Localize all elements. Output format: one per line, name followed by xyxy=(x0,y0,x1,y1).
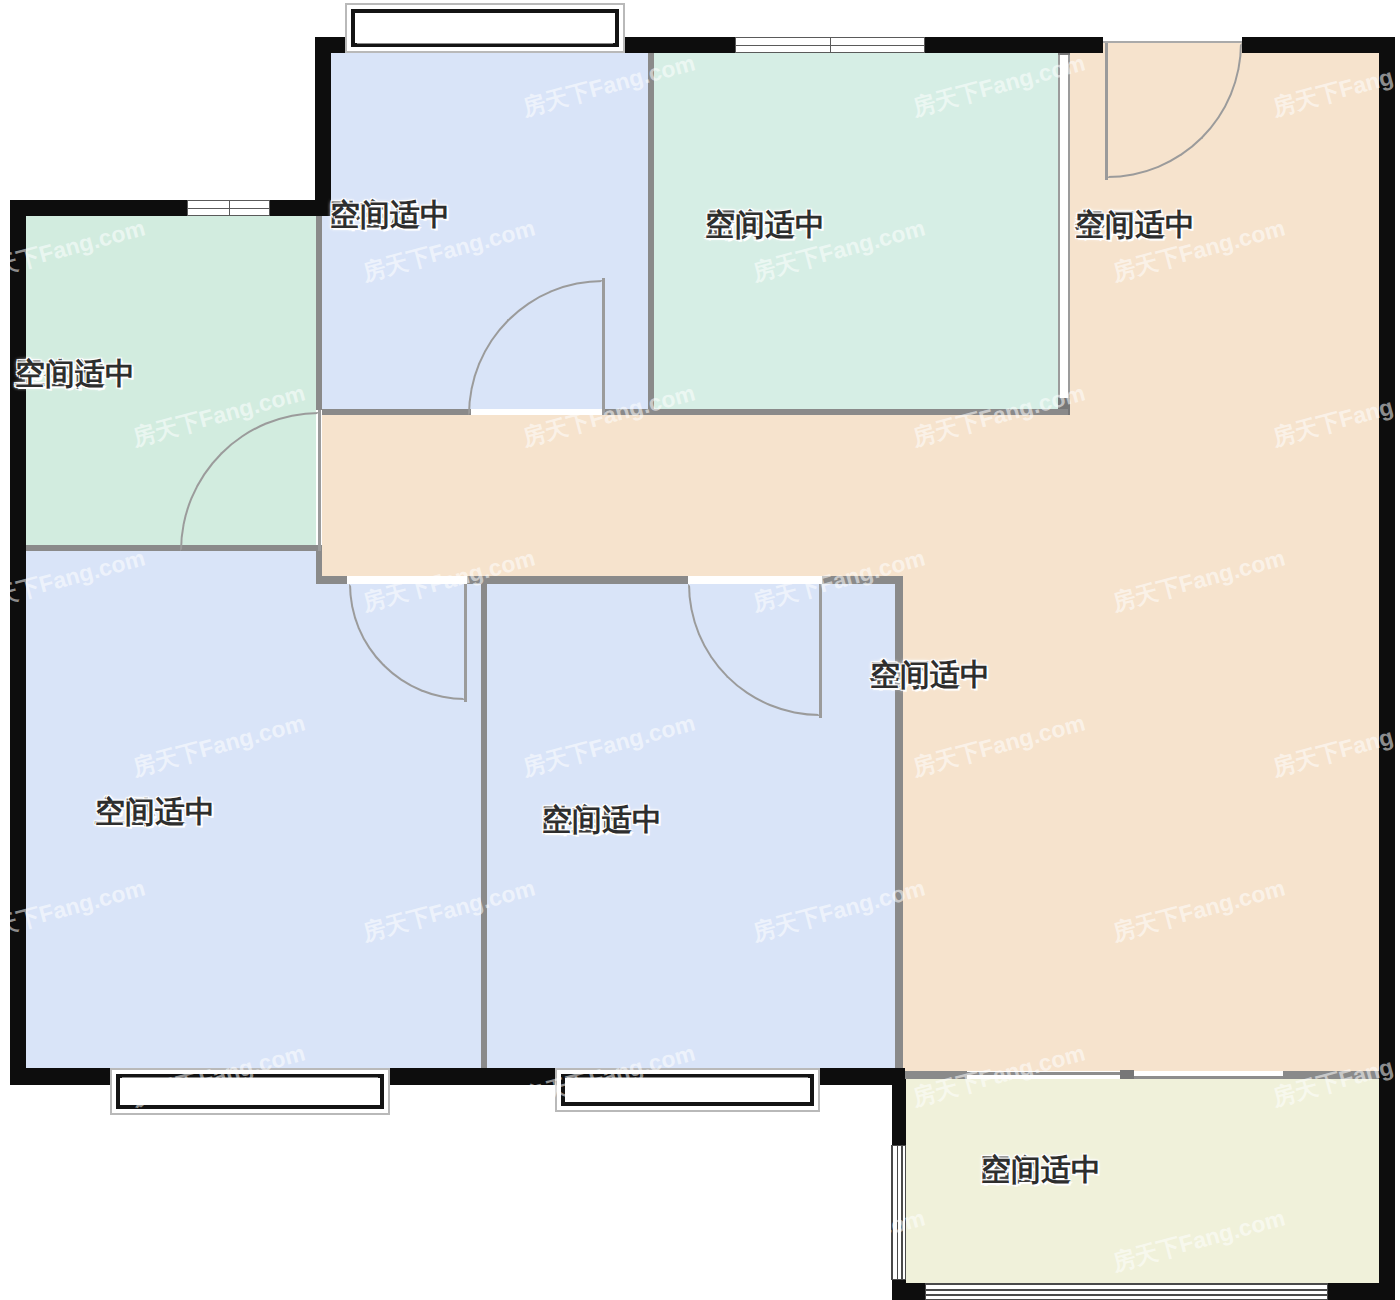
watermark-text: 房天下Fang.com xyxy=(1269,708,1400,784)
watermark-text: 房天下Fang.com xyxy=(749,543,929,619)
watermark-text: 房天下Fang.com xyxy=(1269,1038,1400,1114)
watermark-text: 房天下Fang.com xyxy=(1109,213,1289,289)
watermark-text: 房天下Fang.com xyxy=(359,1203,539,1279)
watermark-text: 房天下Fang.com xyxy=(749,1203,929,1279)
watermark-text: 房天下Fang.com xyxy=(359,543,539,619)
watermark-text: 房天下Fang.com xyxy=(909,1038,1089,1114)
watermark-text: 房天下Fang.com xyxy=(1109,543,1289,619)
watermark-text: 房天下Fang.com xyxy=(0,873,149,949)
watermark-text: 房天下Fang.com xyxy=(1109,873,1289,949)
watermark-text: 房天下Fang.com xyxy=(129,48,309,124)
watermark-text: 房天下Fang.com xyxy=(1269,378,1400,454)
watermark-text: 房天下Fang.com xyxy=(359,873,539,949)
watermark-text: 房天下Fang.com xyxy=(129,708,309,784)
watermark-text: 房天下Fang.com xyxy=(1269,48,1400,124)
watermark-text: 房天下Fang.com xyxy=(519,378,699,454)
watermark-text: 房天下Fang.com xyxy=(909,378,1089,454)
watermark-text: 房天下Fang.com xyxy=(909,708,1089,784)
watermark-text: 房天下Fang.com xyxy=(909,48,1089,124)
watermark-text: 房天下Fang.com xyxy=(0,213,149,289)
watermark-layer: 房天下Fang.com房天下Fang.com房天下Fang.com房天下Fang… xyxy=(0,0,1400,1300)
watermark-text: 房天下Fang.com xyxy=(519,48,699,124)
watermark-text: 房天下Fang.com xyxy=(749,873,929,949)
watermark-text: 房天下Fang.com xyxy=(129,378,309,454)
watermark-text: 房天下Fang.com xyxy=(129,1038,309,1114)
floor-plan: 卧室A 空间适中 厨房 空间适中 餐厅 空间适中 卫生间 空间适中 主卧 空间适… xyxy=(0,0,1400,1300)
watermark-text: 房天下Fang.com xyxy=(1109,1203,1289,1279)
watermark-text: 房天下Fang.com xyxy=(0,1203,149,1279)
watermark-text: 房天下Fang.com xyxy=(749,213,929,289)
watermark-text: 房天下Fang.com xyxy=(0,543,149,619)
watermark-text: 房天下Fang.com xyxy=(519,1038,699,1114)
watermark-text: 房天下Fang.com xyxy=(359,213,539,289)
watermark-text: 房天下Fang.com xyxy=(519,708,699,784)
